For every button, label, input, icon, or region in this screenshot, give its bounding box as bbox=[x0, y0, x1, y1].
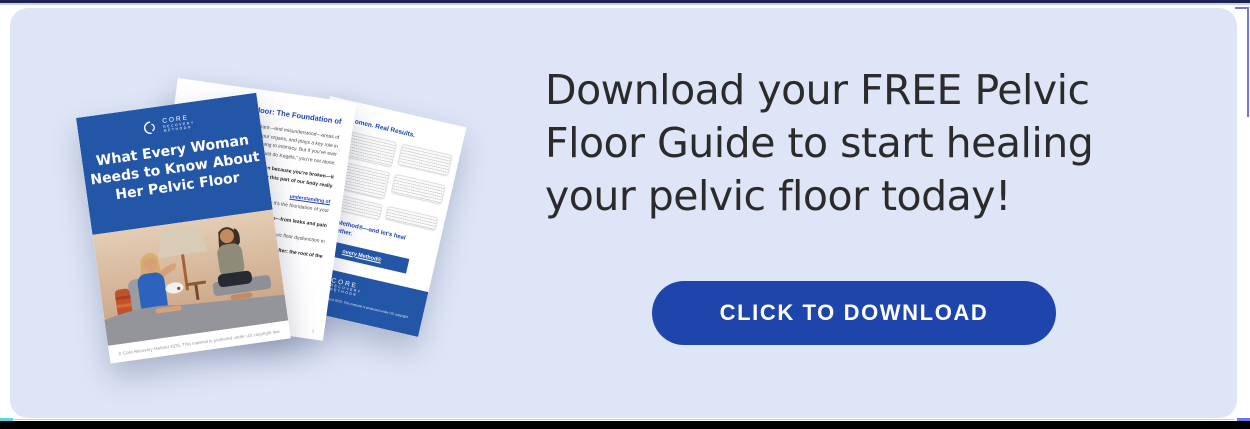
right-edge-border bbox=[1247, 7, 1249, 117]
card-bottom-edge-line bbox=[12, 419, 1234, 420]
banner-headline: Download your FREE Pelvic Floor Guide to… bbox=[545, 64, 1093, 223]
testimonial-bubble bbox=[391, 174, 446, 205]
click-to-download-button[interactable]: CLICK TO DOWNLOAD bbox=[652, 281, 1056, 345]
footer-logo-text: CORE RECOVERY METHOD® bbox=[329, 277, 363, 299]
mockup-cover: CORE RECOVERY METHOD® What Every Woman N… bbox=[76, 93, 291, 364]
cover-logo-text: CORE RECOVERY METHOD® bbox=[162, 114, 196, 134]
top-border-light bbox=[0, 3, 1250, 5]
headline-line: your pelvic floor today! bbox=[545, 170, 1093, 223]
crescent-mark-icon bbox=[142, 119, 160, 137]
headline-line: Floor Guide to start healing bbox=[545, 117, 1093, 170]
page-number: 1 bbox=[312, 328, 315, 333]
testimonial-bubble bbox=[397, 143, 453, 176]
right-edge-border-top bbox=[1235, 7, 1249, 9]
headline-line: Download your FREE Pelvic bbox=[545, 64, 1093, 117]
lead-magnet-banner: omen. Real Results. very Method®—and let… bbox=[0, 0, 1250, 429]
testimonial-bubble bbox=[385, 206, 439, 231]
bottom-divider-bar bbox=[0, 421, 1250, 429]
